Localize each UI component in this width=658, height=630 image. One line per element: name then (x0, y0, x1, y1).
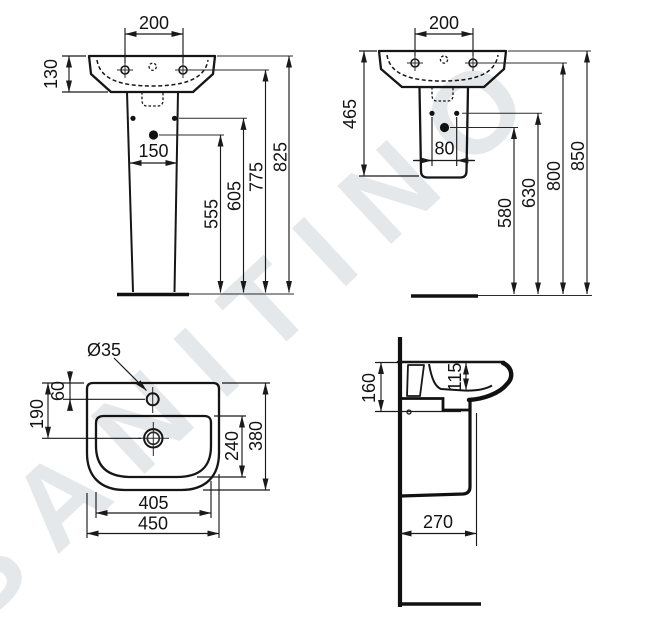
dim-label-200-semi: 200 (429, 13, 459, 33)
dim-190: 190 (27, 383, 48, 438)
dim-label-850: 850 (568, 141, 588, 171)
dim-label-555: 555 (202, 199, 222, 229)
dim-label-240: 240 (222, 431, 242, 461)
dim-label-825: 825 (271, 142, 291, 172)
dim-60: 60 (48, 371, 70, 410)
dim-200-semi: 200 (415, 13, 473, 56)
dim-label-580: 580 (495, 198, 515, 228)
top-view: Ø35 60 190 240 (27, 340, 270, 538)
front-view-full-pedestal: 200 130 150 555 605 775 (41, 13, 294, 295)
dim-555: 555 (159, 135, 224, 293)
dim-label-80: 80 (434, 139, 454, 159)
dim-label-200-front: 200 (139, 13, 169, 33)
pedestal-fixing-dot-right (454, 111, 459, 116)
dim-150: 150 (130, 141, 177, 163)
trap-outlet-dot (440, 123, 449, 132)
dim-label-605: 605 (225, 181, 245, 211)
dim-label-115: 115 (445, 363, 465, 392)
dim-270: 270 (400, 413, 477, 546)
dim-label-270: 270 (423, 512, 453, 532)
dim-label-380: 380 (246, 421, 266, 451)
dim-label-775: 775 (247, 162, 267, 192)
dim-115: 115 (445, 363, 466, 392)
trap-outlet-dot (149, 130, 158, 139)
dim-label-800: 800 (544, 161, 564, 191)
dim-label-405: 405 (138, 493, 168, 513)
overflow-channel-section (407, 365, 424, 396)
basin-underside-step (400, 399, 470, 411)
semi-pedestal-profile (401, 400, 470, 496)
dim-label-630: 630 (519, 178, 539, 208)
dim-label-190: 190 (27, 399, 47, 429)
dim-label-dia35: Ø35 (87, 340, 121, 360)
dim-label-130: 130 (41, 59, 61, 89)
dim-label-450: 450 (138, 514, 168, 534)
basin-front-lip (469, 363, 511, 400)
side-view: 160 115 270 (359, 337, 511, 607)
drawing-canvas: 200 130 150 555 605 775 (0, 0, 658, 630)
dim-160: 160 (359, 363, 381, 412)
dim-label-160: 160 (359, 373, 379, 403)
washbasin-technical-drawing: 200 130 150 555 605 775 (0, 0, 658, 630)
drain-trap-hidden-line (142, 92, 163, 106)
pedestal-fixing-dot-right (172, 116, 177, 121)
pedestal-fixing-dot-left (130, 116, 135, 121)
dim-label-150: 150 (138, 141, 168, 161)
pedestal-outline (117, 92, 189, 295)
dim-label-465: 465 (340, 99, 360, 129)
front-view-semi-pedestal: 200 465 80 580 630 80 (340, 13, 592, 296)
pedestal-fixing-dot-left (429, 111, 434, 116)
dim-label-60: 60 (48, 381, 68, 401)
